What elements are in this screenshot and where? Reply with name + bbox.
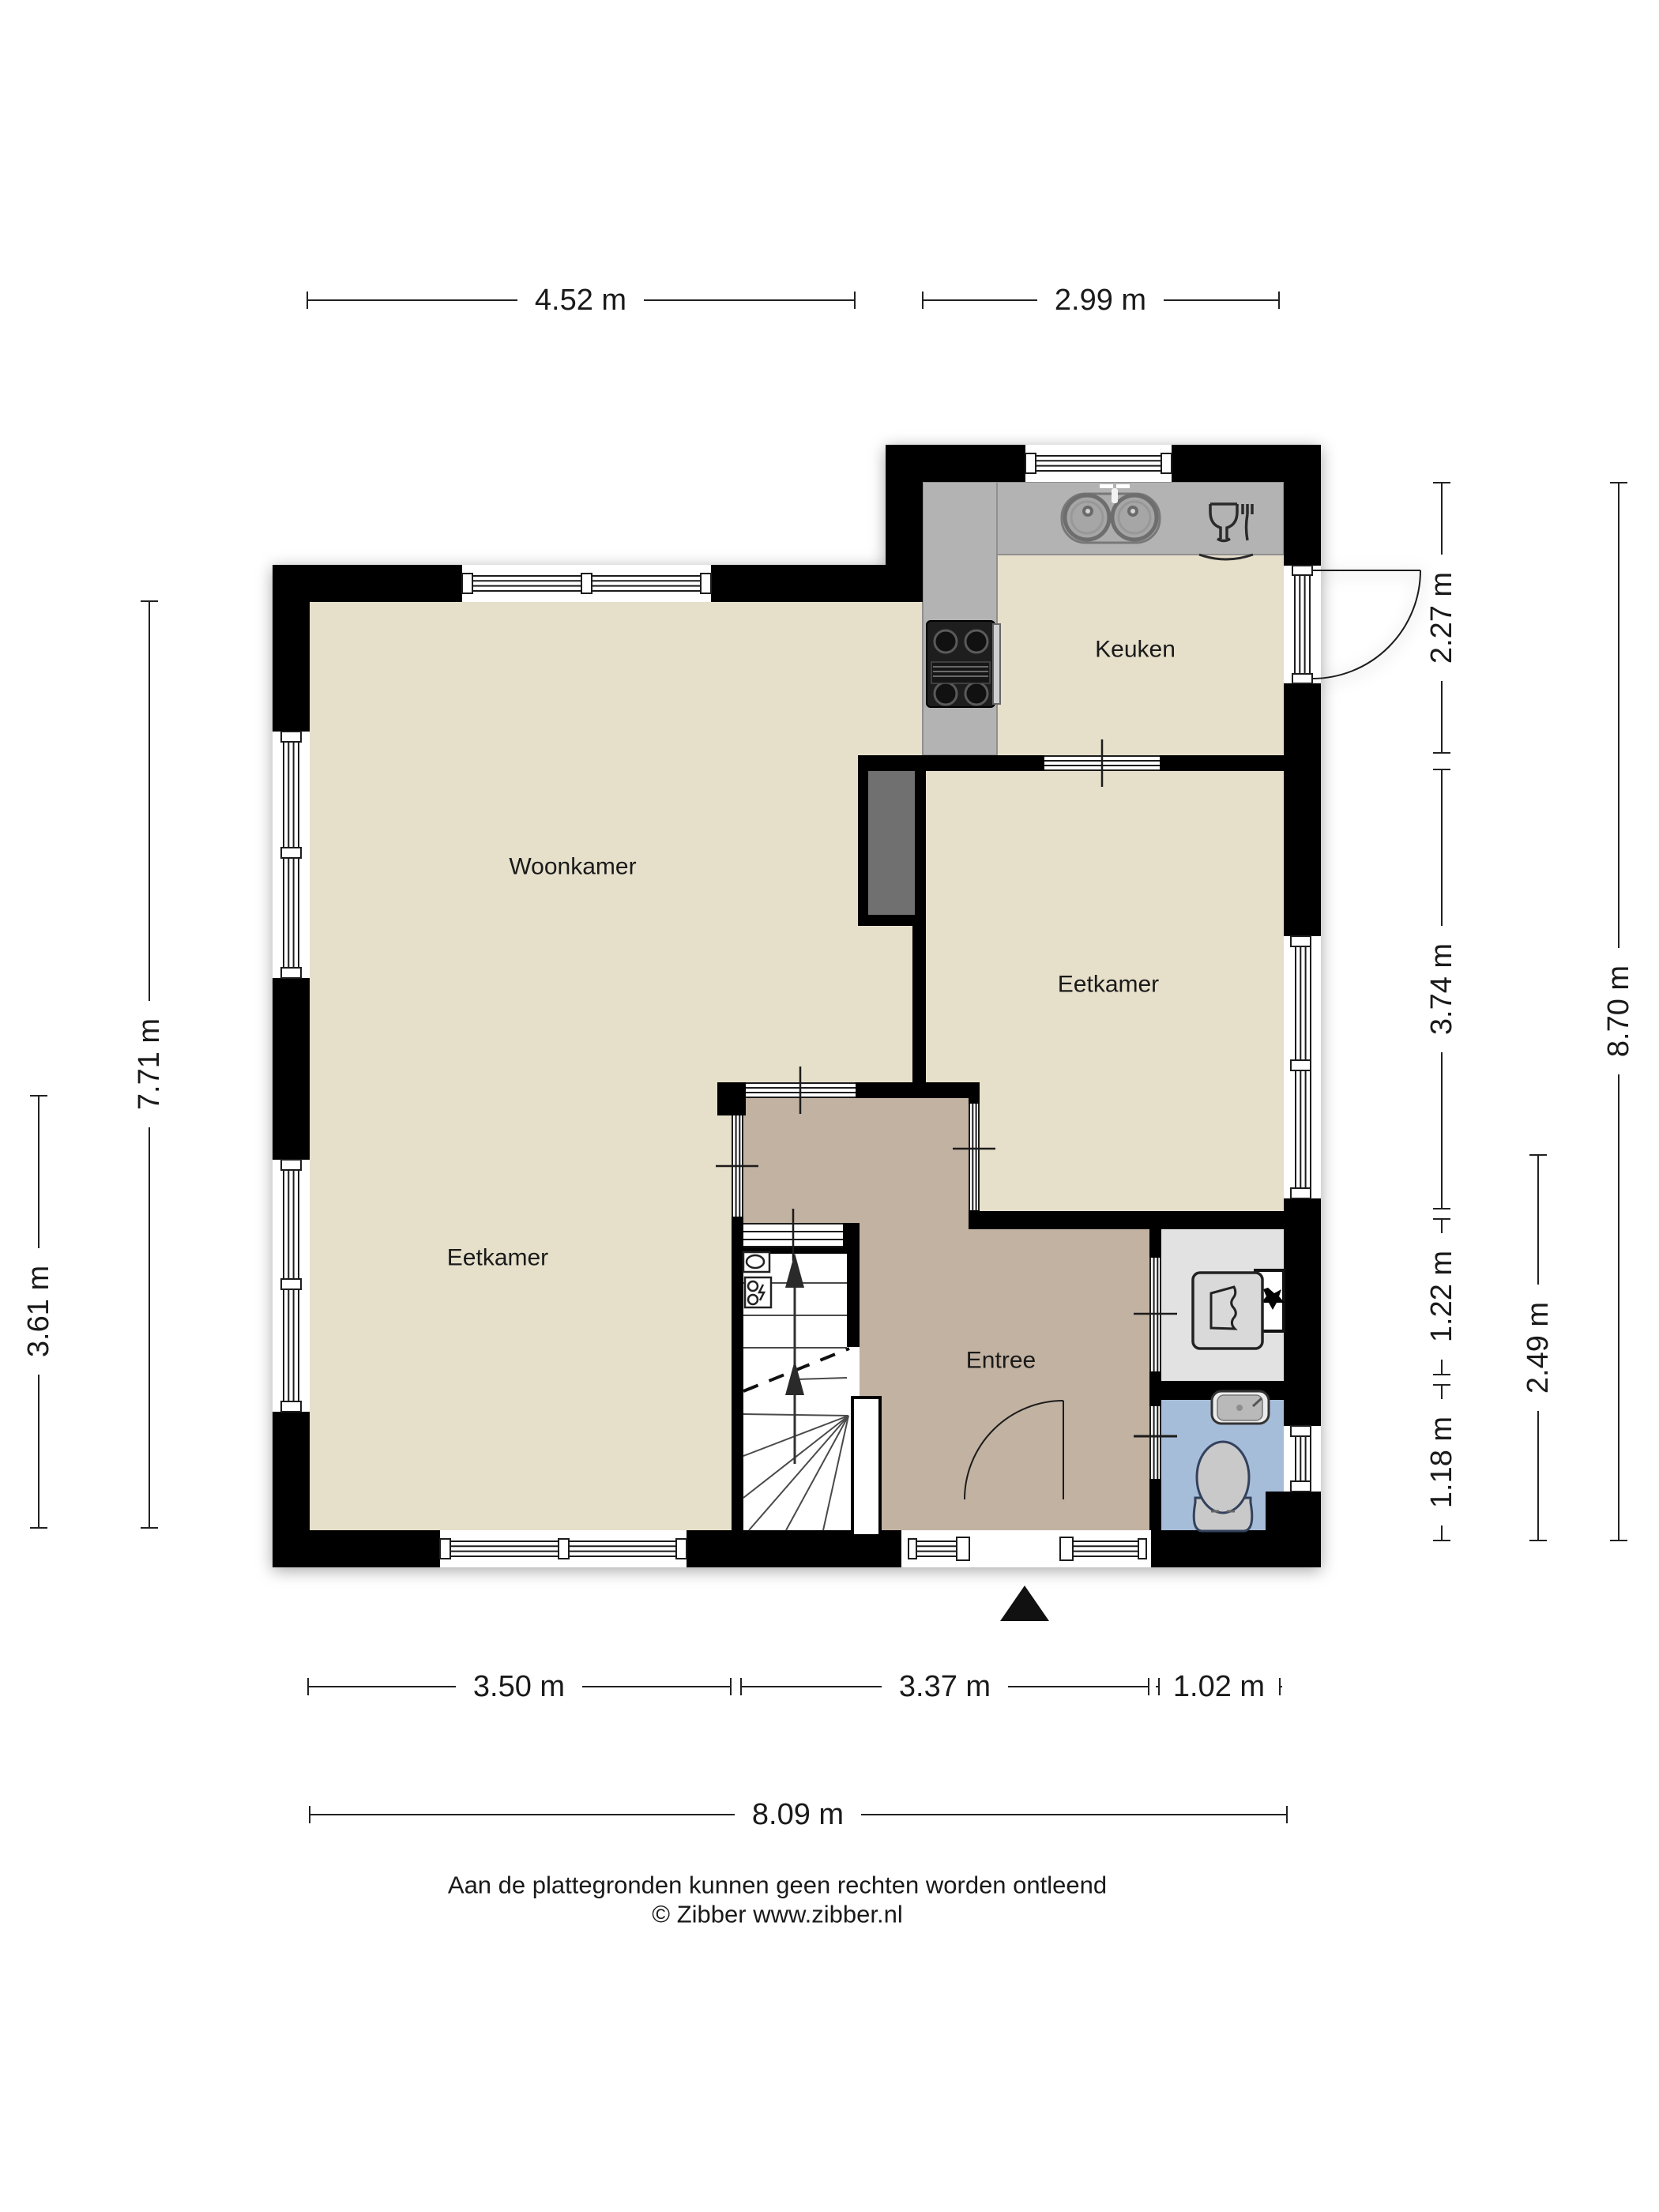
svg-text:3.61 m: 3.61 m <box>22 1266 55 1357</box>
svg-text:Woonkamer: Woonkamer <box>509 854 636 880</box>
svg-text:2.99 m: 2.99 m <box>1055 284 1146 317</box>
svg-text:Entree: Entree <box>966 1348 1036 1374</box>
svg-text:7.71 m: 7.71 m <box>133 1018 166 1110</box>
svg-text:3.50 m: 3.50 m <box>473 1670 565 1703</box>
svg-text:3.37 m: 3.37 m <box>899 1670 991 1703</box>
svg-text:1.22 m: 1.22 m <box>1425 1251 1458 1342</box>
svg-text:2.27 m: 2.27 m <box>1425 572 1458 664</box>
svg-text:8.70 m: 8.70 m <box>1602 965 1635 1057</box>
svg-text:© Zibber www.zibber.nl: © Zibber www.zibber.nl <box>652 1901 902 1928</box>
svg-text:4.52 m: 4.52 m <box>535 284 626 317</box>
svg-text:Eetkamer: Eetkamer <box>1058 972 1159 998</box>
svg-text:3.74 m: 3.74 m <box>1425 943 1458 1035</box>
svg-text:Aan de plattegronden kunnen ge: Aan de plattegronden kunnen geen rechten… <box>448 1872 1107 1899</box>
svg-text:1.02 m: 1.02 m <box>1173 1670 1265 1703</box>
svg-text:Eetkamer: Eetkamer <box>447 1245 548 1271</box>
svg-text:2.49 m: 2.49 m <box>1522 1302 1555 1394</box>
svg-text:Keuken: Keuken <box>1095 637 1176 663</box>
svg-text:8.09 m: 8.09 m <box>752 1798 844 1831</box>
svg-text:1.18 m: 1.18 m <box>1425 1416 1458 1508</box>
